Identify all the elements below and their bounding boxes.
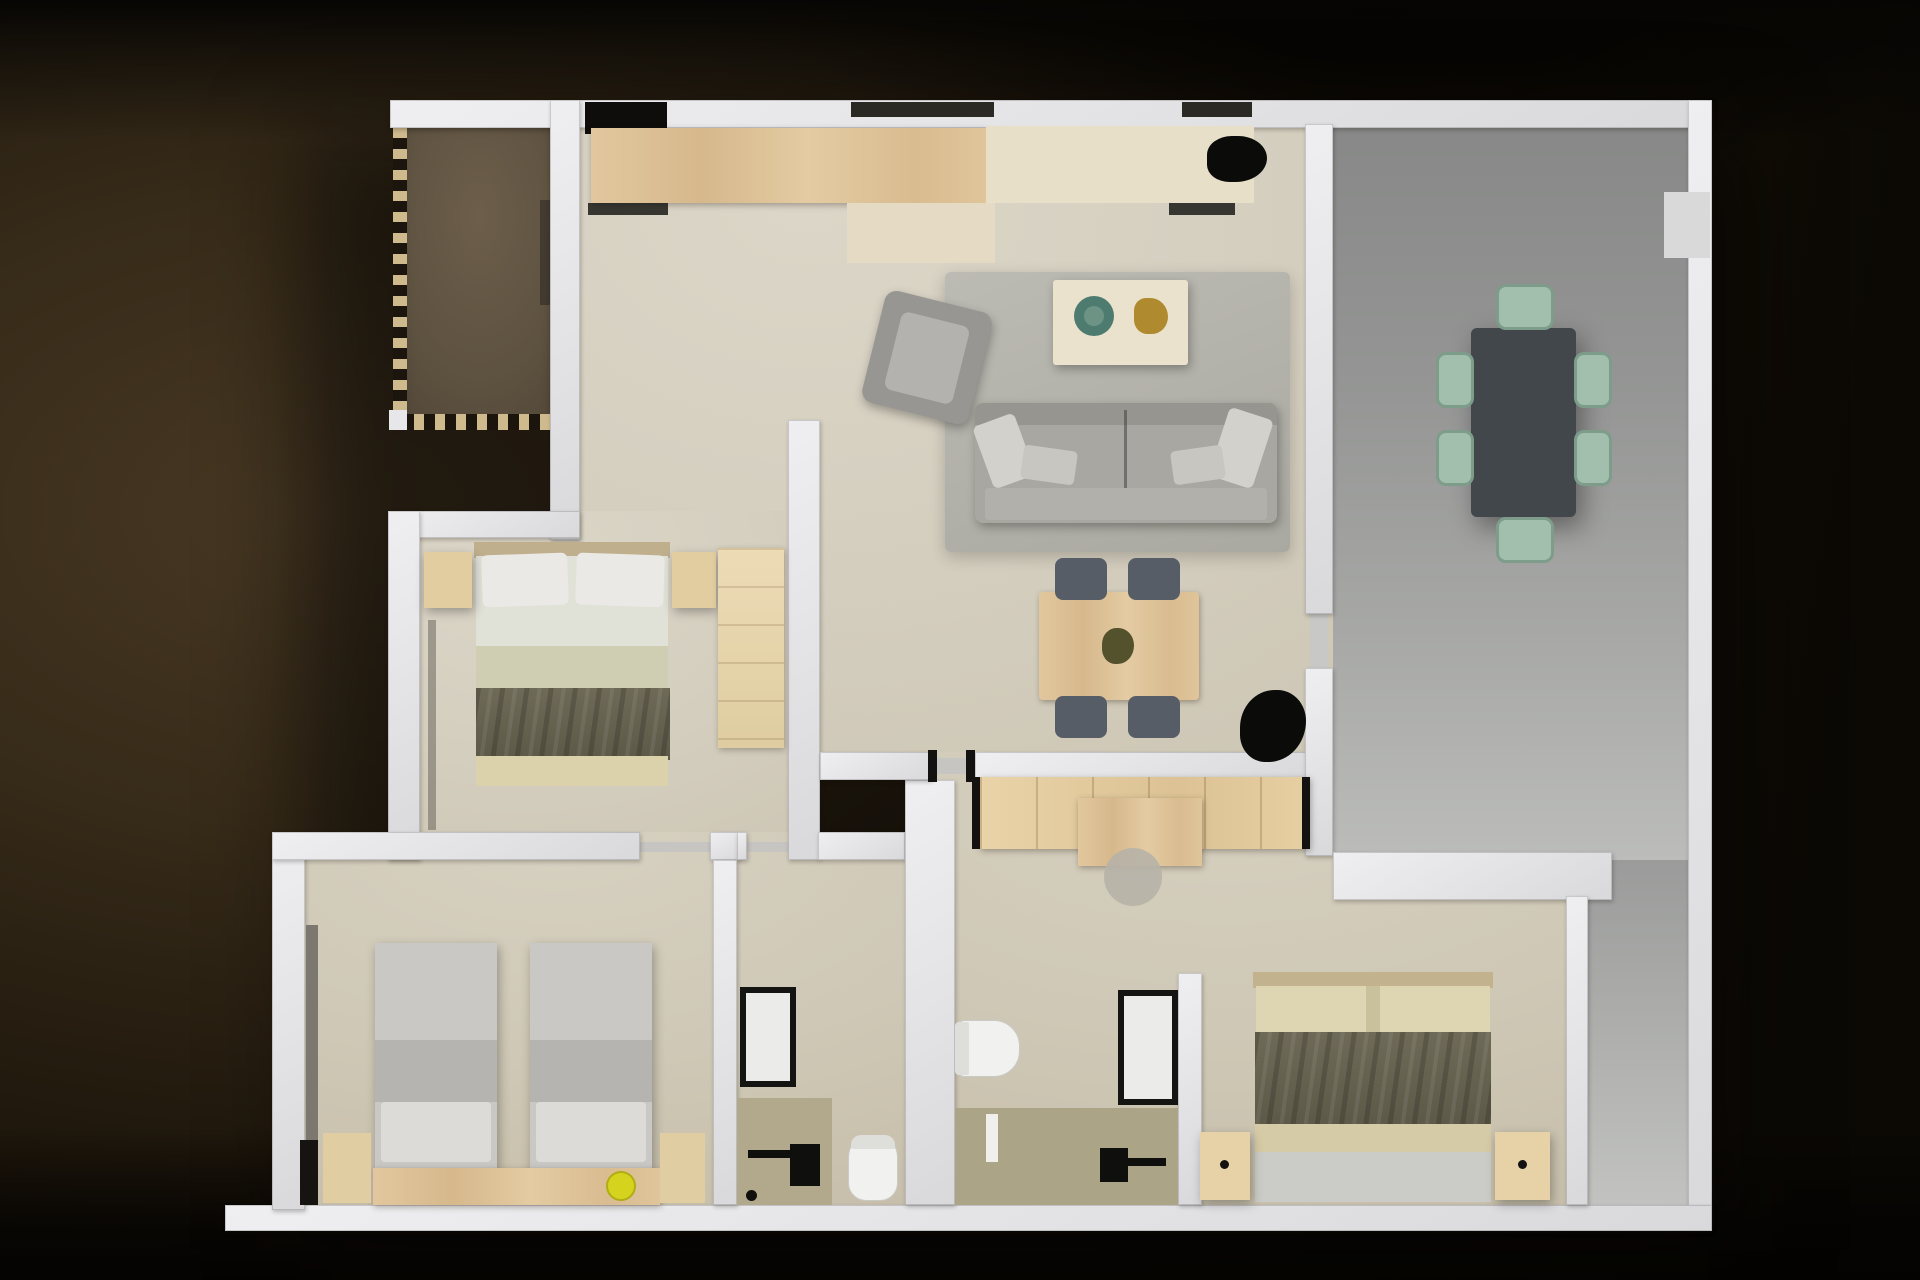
sofa-seat-front	[985, 488, 1267, 520]
wall-bottom	[225, 1205, 1712, 1231]
wall-balcony-right	[550, 100, 580, 540]
bathroom1-faucet-box	[790, 1144, 820, 1186]
wall-bath2-bedroom-divider	[1178, 973, 1202, 1205]
wall-hall-a	[820, 752, 932, 780]
kitchen-counter-return	[847, 203, 995, 263]
door-threshold-bedroom2	[640, 842, 710, 852]
bathroom1-faucet-dot	[746, 1190, 757, 1201]
dining-chair-2	[1128, 558, 1180, 600]
bedroom1-wardrobe	[718, 548, 784, 748]
master-bed-pillows	[1256, 986, 1490, 1034]
door-jamb-hall-left	[928, 750, 937, 782]
bathroom2-towel	[986, 1114, 998, 1162]
terrace-table	[1471, 328, 1576, 517]
wall-right	[1688, 100, 1712, 1230]
bathroom1-shower	[740, 987, 796, 1087]
bedroom1-nightstand-right	[672, 552, 716, 608]
window-top-1	[851, 102, 994, 117]
kitchen-counter-wood	[591, 128, 986, 203]
wall-step-b	[710, 832, 740, 860]
balcony-wall-shadow	[540, 200, 550, 305]
master-bed-band	[1255, 1124, 1491, 1154]
twin-bed-right-pillow	[536, 1102, 646, 1162]
wall-bath1-left	[713, 860, 737, 1205]
terrace-chair-bottom	[1496, 517, 1554, 563]
bedroom2-nightstand-right	[660, 1133, 705, 1203]
terrace-walkway-floor	[1588, 860, 1688, 1205]
sofa-pillow-left-b	[1020, 444, 1078, 485]
bathroom2-shower	[1118, 990, 1178, 1105]
bathroom2-faucet-arm	[1128, 1158, 1166, 1166]
terrace-chair-right-1	[1574, 352, 1612, 408]
kitchen-counter-mark-2	[1169, 203, 1235, 215]
closet-jamb-left	[972, 777, 980, 849]
twin-bed-left-pillow	[381, 1102, 491, 1162]
wall-step-a	[272, 832, 640, 860]
coffee-table	[1053, 280, 1188, 365]
balcony-dashed-edge-bottom	[393, 414, 550, 430]
terrace-chair-left-1	[1436, 352, 1474, 408]
wall-bedroom1-left	[388, 511, 420, 860]
bathroom1-faucet-arm	[748, 1150, 792, 1158]
master-bed-foot	[1255, 1152, 1491, 1202]
balcony-floor	[393, 124, 550, 430]
wall-bedroom1-right	[788, 420, 820, 860]
closet-jamb-right	[1302, 777, 1310, 849]
kitchen-counter-mark-1	[588, 203, 668, 215]
yellow-pouf	[606, 1171, 636, 1201]
dining-chair-4	[1128, 696, 1180, 738]
terrace-chair-right-2	[1574, 430, 1612, 486]
balcony-dashed-edge-left	[393, 128, 407, 414]
master-bed-blanket	[1255, 1032, 1491, 1126]
wall-master-right	[1566, 896, 1588, 1205]
dining-chair-1	[1055, 558, 1107, 600]
master-nightstand-right-knob	[1518, 1160, 1527, 1169]
wall-bath-divider	[905, 780, 955, 1205]
bedroom1-sheet-band	[476, 646, 668, 690]
twin-bed-left-band	[375, 1040, 497, 1102]
bedroom1-pillow-right	[575, 552, 665, 607]
bedroom1-wall-shadow	[428, 620, 436, 830]
bathroom1-toilet-tank	[851, 1135, 895, 1149]
wall-bath1-top-a	[737, 832, 747, 860]
master-stool	[1104, 848, 1162, 906]
sofa-pillow-right-b	[1170, 445, 1226, 486]
bedroom2-wardrobe-rail	[306, 925, 318, 1140]
dining-chair-3	[1055, 696, 1107, 738]
bedroom1-blanket	[476, 688, 670, 760]
balcony-corner-block	[389, 410, 407, 430]
wall-terrace-bottom	[1333, 852, 1612, 900]
decor-gold-object	[1134, 298, 1168, 334]
master-nightstand-left-knob	[1220, 1160, 1229, 1169]
wall-bath1-top-b	[818, 832, 905, 860]
bedroom2-wardrobe-dark	[300, 1140, 318, 1205]
bedroom1-nightstand-left	[424, 552, 472, 608]
bathroom2-faucet-box	[1100, 1148, 1128, 1182]
door-threshold-terrace	[1310, 614, 1328, 668]
wall-terrace-left-upper	[1305, 124, 1333, 614]
ac-unit	[1664, 192, 1710, 258]
bedroom1-pillow-left	[481, 553, 569, 608]
bedroom2-nightstand-left	[323, 1133, 371, 1203]
twin-bed-right-band	[530, 1040, 652, 1102]
terrace-chair-left-2	[1436, 430, 1474, 486]
terrace-chair-top	[1496, 284, 1554, 330]
floor-plan-render	[0, 0, 1920, 1280]
bathroom2-toilet-tank	[955, 1022, 969, 1075]
window-top-2	[1182, 102, 1252, 117]
bedroom1-footer	[476, 756, 668, 786]
decor-plate-inner	[1084, 306, 1104, 326]
